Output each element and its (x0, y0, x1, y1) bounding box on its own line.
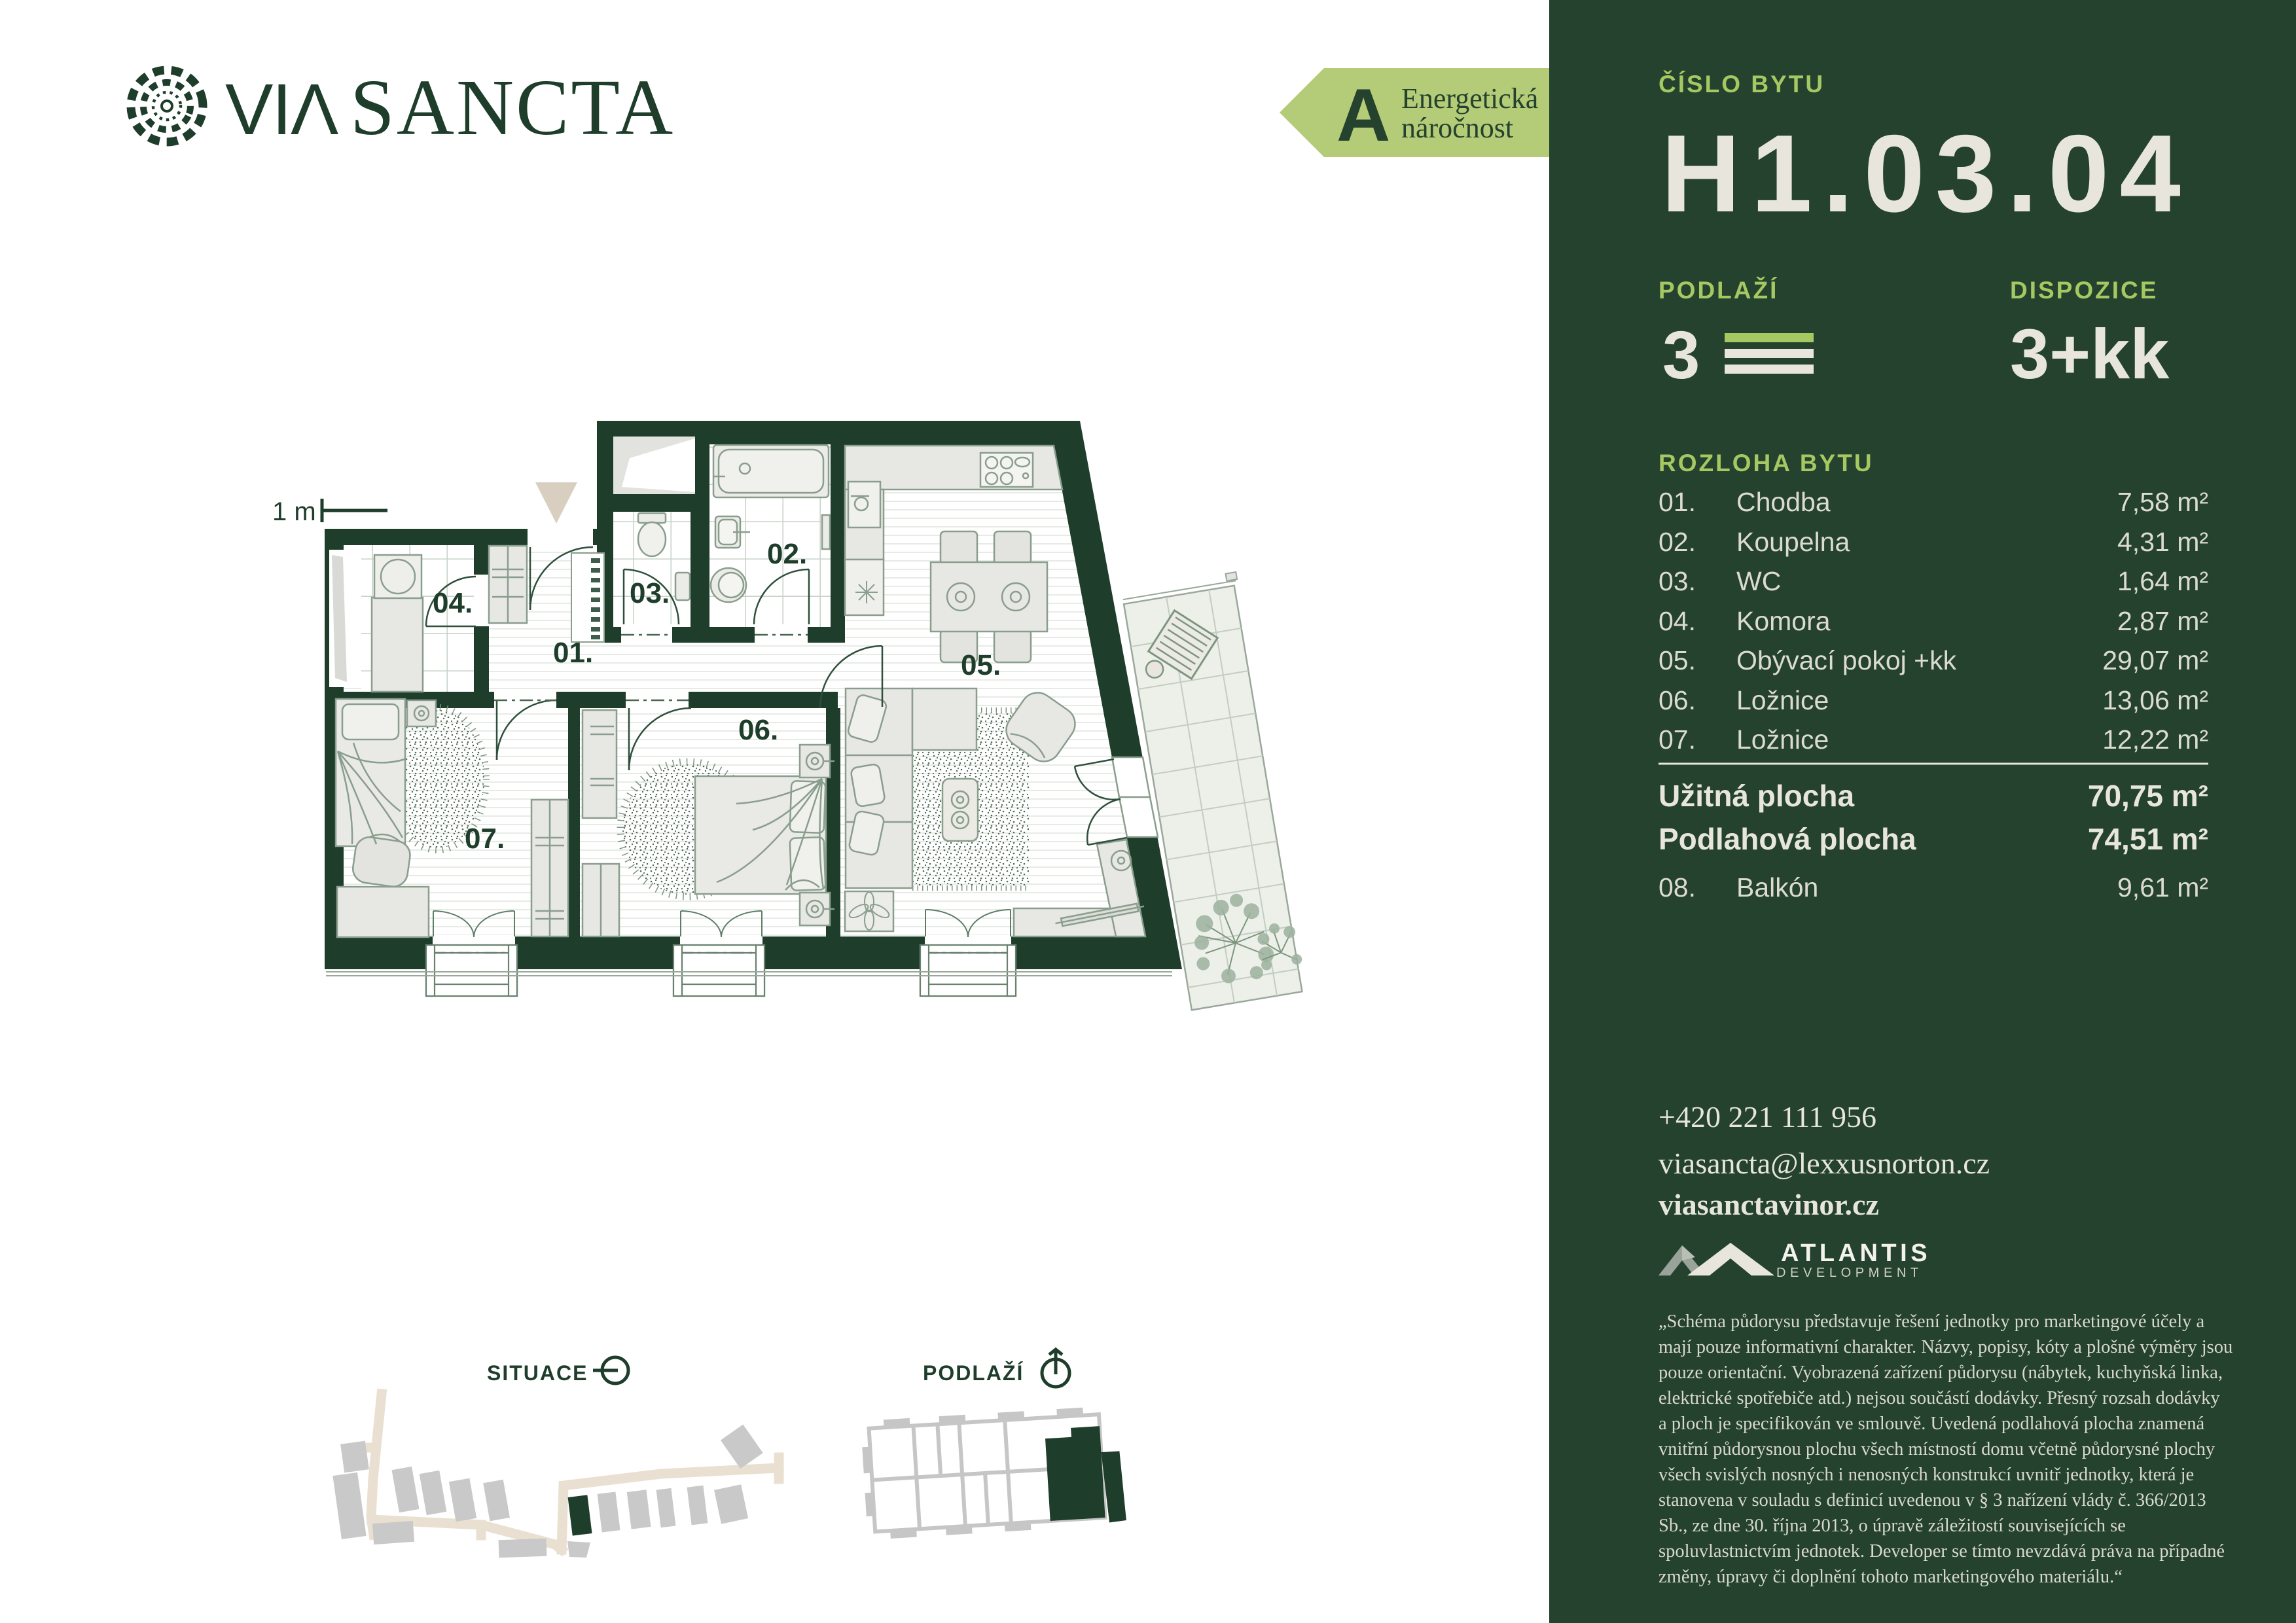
svg-text:05.: 05. (961, 649, 1001, 681)
svg-text:mají pouze informativní charak: mají pouze informativní charakter. Názvy… (1659, 1337, 2233, 1357)
svg-text:WC: WC (1736, 566, 1781, 596)
svg-text:06.: 06. (738, 714, 778, 746)
svg-text:3: 3 (1662, 317, 1700, 393)
svg-text:viasancta@lexxusnorton.cz: viasancta@lexxusnorton.cz (1659, 1147, 1990, 1180)
svg-text:PODLAŽÍ: PODLAŽÍ (1659, 276, 1778, 304)
svg-text:Ložnice: Ložnice (1736, 724, 1829, 755)
svg-text:03.: 03. (630, 577, 670, 609)
svg-text:01.: 01. (553, 637, 593, 669)
svg-text:H1.03.04: H1.03.04 (1661, 112, 2191, 235)
svg-text:02.: 02. (1659, 527, 1696, 557)
svg-text:elektrické spotřebiče atd.) ne: elektrické spotřebiče atd.) nejsou součá… (1659, 1388, 2220, 1408)
svg-text:stanovena v souladu s definicí: stanovena v souladu s definicí uvedenou … (1659, 1490, 2206, 1510)
svg-text:Energetická: Energetická (1401, 82, 1538, 115)
svg-text:SANCTA: SANCTA (350, 63, 675, 152)
svg-text:DISPOZICE: DISPOZICE (2010, 277, 2158, 304)
svg-text:Komora: Komora (1736, 606, 1831, 636)
svg-text:04.: 04. (1659, 606, 1696, 636)
svg-text:Podlahová plocha: Podlahová plocha (1659, 822, 1916, 856)
svg-text:„Schéma půdorysu představuje ř: „Schéma půdorysu představuje řešení jedn… (1659, 1311, 2205, 1332)
svg-text:A: A (1336, 74, 1390, 157)
svg-text:+420 221 111 956: +420 221 111 956 (1659, 1100, 1876, 1133)
svg-text:3+kk: 3+kk (2010, 314, 2170, 393)
svg-text:ROZLOHA BYTU: ROZLOHA BYTU (1659, 450, 1874, 476)
svg-text:SITUACE: SITUACE (487, 1361, 588, 1385)
svg-text:Chodba: Chodba (1736, 487, 1831, 517)
svg-text:vnitřní půdorysnou plochu všec: vnitřní půdorysnou plochu všech místnost… (1659, 1439, 2215, 1459)
svg-text:Sb., ze dne 30. října 2013, o: Sb., ze dne 30. října 2013, o úpravě zál… (1659, 1516, 2126, 1536)
svg-text:ATLANTIS: ATLANTIS (1781, 1240, 1931, 1267)
svg-text:9,61 m²: 9,61 m² (2117, 872, 2208, 902)
svg-text:spoluvlastnictvím jednotek. De: spoluvlastnictvím jednotek. Developer se… (1659, 1541, 2225, 1561)
svg-text:Koupelna: Koupelna (1736, 527, 1850, 557)
svg-text:70,75 m²: 70,75 m² (2088, 779, 2208, 813)
svg-text:12,22 m²: 12,22 m² (2102, 724, 2208, 755)
svg-text:04.: 04. (433, 587, 473, 619)
svg-text:Užitná plocha: Užitná plocha (1659, 779, 1854, 813)
svg-text:74,51 m²: 74,51 m² (2088, 822, 2208, 856)
svg-text:DEVELOPMENT: DEVELOPMENT (1776, 1266, 1923, 1280)
svg-text:02.: 02. (767, 538, 807, 570)
svg-text:Obývací pokoj +kk: Obývací pokoj +kk (1736, 645, 1957, 675)
svg-text:05.: 05. (1659, 645, 1696, 675)
svg-text:Ložnice: Ložnice (1736, 685, 1829, 715)
svg-text:viasanctavinor.cz: viasanctavinor.cz (1659, 1188, 1879, 1221)
svg-text:08.: 08. (1659, 872, 1696, 902)
svg-text:všech svislých nosných i nenos: všech svislých nosných i nenosných konst… (1659, 1465, 2194, 1485)
svg-text:1,64 m²: 1,64 m² (2117, 566, 2208, 596)
svg-text:Balkón: Balkón (1736, 872, 1818, 902)
svg-text:VIΛ: VIΛ (225, 69, 338, 150)
svg-text:01.: 01. (1659, 487, 1696, 517)
svg-text:změny, úpravy či doplnění toho: změny, úpravy či doplnění tohoto marketi… (1659, 1567, 2123, 1587)
svg-text:pouze orientační. Vyobrazená z: pouze orientační. Vyobrazená zařízení pů… (1659, 1363, 2223, 1383)
svg-text:29,07 m²: 29,07 m² (2102, 645, 2208, 675)
svg-text:PODLAŽÍ: PODLAŽÍ (923, 1361, 1024, 1385)
svg-text:1 m: 1 m (272, 497, 316, 526)
svg-text:07.: 07. (465, 823, 505, 855)
svg-text:07.: 07. (1659, 724, 1696, 755)
svg-text:2,87 m²: 2,87 m² (2117, 606, 2208, 636)
svg-text:7,58 m²: 7,58 m² (2117, 487, 2208, 517)
svg-text:a ploch je specifikován ve sml: a ploch je specifikován ve smlouvě. Uved… (1659, 1414, 2204, 1434)
svg-text:03.: 03. (1659, 566, 1696, 596)
svg-text:náročnost: náročnost (1401, 112, 1513, 144)
svg-text:4,31 m²: 4,31 m² (2117, 527, 2208, 557)
svg-text:06.: 06. (1659, 685, 1696, 715)
svg-text:13,06 m²: 13,06 m² (2102, 685, 2208, 715)
svg-text:ČÍSLO BYTU: ČÍSLO BYTU (1659, 70, 1825, 98)
